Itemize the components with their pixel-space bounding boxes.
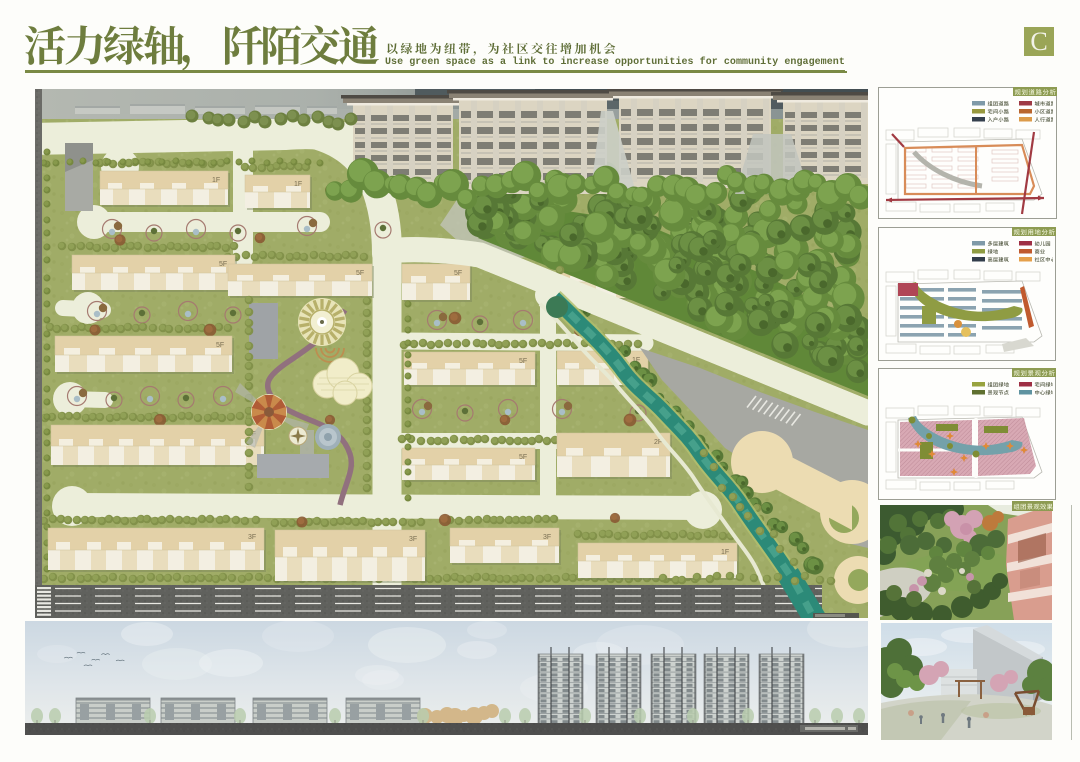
svg-text:3F: 3F [248, 534, 256, 541]
svg-text:5F: 5F [519, 454, 527, 461]
svg-text:1F: 1F [721, 549, 729, 556]
svg-text:5F: 5F [219, 261, 227, 268]
svg-text:1F: 1F [212, 177, 220, 184]
svg-text:5F: 5F [216, 342, 224, 349]
svg-text:5F: 5F [519, 358, 527, 365]
svg-text:5F: 5F [356, 270, 364, 277]
svg-text:3F: 3F [543, 534, 551, 541]
svg-text:1F: 1F [294, 181, 302, 188]
svg-text:3F: 3F [409, 536, 417, 543]
svg-text:5F: 5F [454, 270, 462, 277]
